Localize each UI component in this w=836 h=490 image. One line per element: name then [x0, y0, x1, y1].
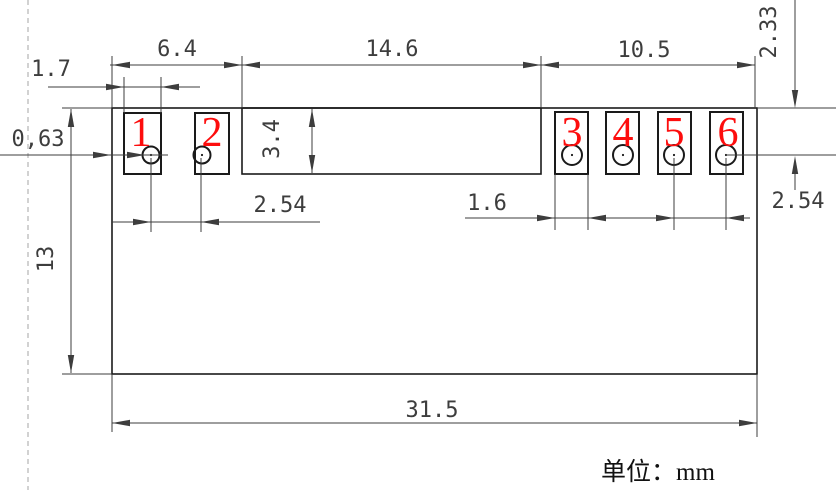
arrowhead [68, 355, 74, 373]
pad-4: 4 [606, 110, 639, 174]
arrowhead [112, 62, 130, 68]
dim-bottom-right-chain: 1.6 2.54 [465, 158, 824, 230]
dim-top-chain: 6.4 14.6 10.5 [110, 37, 755, 108]
pad-2: 2 [194, 110, 230, 174]
pad-6-number: 6 [718, 110, 739, 156]
dim-6.4-label: 6.4 [157, 37, 197, 62]
dim-2.33-label: 2.33 [757, 6, 782, 59]
arrowhead [726, 215, 744, 221]
pad-1-number: 1 [131, 110, 152, 156]
arrowhead [106, 84, 124, 90]
dim-31.5-label: 31.5 [406, 398, 459, 423]
arrowhead [133, 219, 151, 225]
arrowhead [541, 62, 559, 68]
arrowhead [161, 84, 179, 90]
pad-5-number: 5 [664, 110, 685, 156]
arrowhead [737, 62, 755, 68]
pad-3: 3 [555, 110, 588, 174]
arrowhead [792, 90, 798, 108]
arrowhead [201, 219, 219, 225]
pad-2-number: 2 [202, 110, 223, 156]
dim-module-width: 31.5 [112, 374, 757, 437]
drawing-canvas: 1 2 3 4 5 6 [0, 0, 836, 490]
pad-4-number: 4 [613, 110, 634, 156]
arrowhead [224, 62, 242, 68]
pad-3-number: 3 [562, 110, 583, 156]
technical-drawing: 1 2 3 4 5 6 [0, 0, 836, 490]
arrowhead [68, 109, 74, 127]
arrowhead [537, 215, 555, 221]
dim-13-label: 13 [34, 246, 59, 273]
dim-10.5-label: 10.5 [618, 38, 671, 63]
dim-1.6-label: 1.6 [467, 191, 507, 216]
arrowhead [242, 62, 260, 68]
dim-2.54-right-label: 2.54 [772, 189, 825, 214]
dim-1.7-label: 1.7 [31, 57, 71, 82]
arrowhead [112, 420, 130, 426]
arrowhead [588, 215, 606, 221]
dim-0.63-label: 0,63 [12, 127, 65, 152]
arrowhead [792, 156, 798, 174]
arrowhead [523, 62, 541, 68]
dim-middle-height: 3.4 [260, 109, 315, 173]
pads: 1 2 3 4 5 6 [124, 110, 743, 174]
arrowhead [309, 109, 315, 127]
middle-section-rect [242, 108, 541, 174]
pad-1: 1 [124, 110, 161, 174]
arrowhead [656, 215, 674, 221]
dim-3.4-label: 3.4 [260, 119, 285, 159]
dim-14.6-label: 14.6 [366, 37, 419, 62]
dim-2.54-left-label: 2.54 [254, 193, 307, 218]
arrowhead [309, 155, 315, 173]
arrowhead [93, 152, 111, 158]
unit-label: 单位：mm [601, 458, 715, 486]
arrowhead [739, 420, 757, 426]
dim-pads12-pitch: 2.54 [112, 158, 320, 232]
